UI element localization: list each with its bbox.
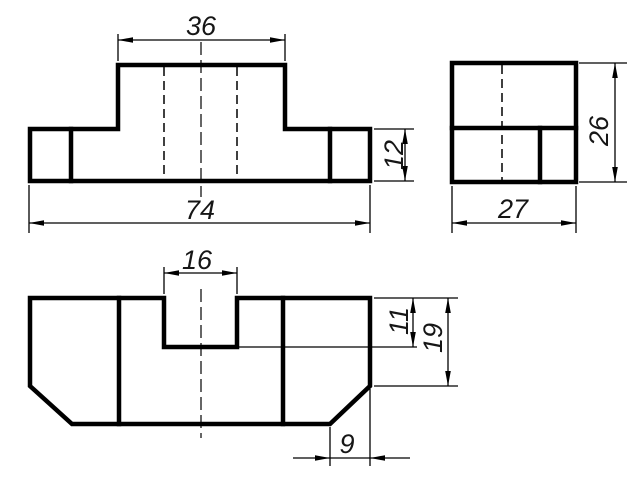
dimension-slot-width: 16 [164,245,237,294]
arrowhead-left [164,270,179,276]
dim-label-depth-to-chamfer: 19 [418,323,448,353]
arrowhead-left [118,37,133,43]
arrowhead-down [445,371,451,386]
arrowhead-left [452,220,467,226]
orthographic-drawing: 36 74 12 [0,0,640,480]
arrowhead-right [355,220,370,226]
dim-label-depth: 27 [497,194,529,224]
front-view-outline [30,65,370,181]
arrowhead-right [222,270,237,276]
arrowhead-left [29,220,44,226]
dim-label-total-width: 74 [185,195,215,225]
arrowhead-up [445,298,451,313]
top-view-outline [30,298,370,424]
drawing-canvas: 36 74 12 [0,0,640,480]
dimension-total-width: 74 [29,185,370,233]
dimension-slot-depth: 11 [384,298,416,347]
dimension-depth: 27 [452,186,576,233]
arrowhead-right [270,37,285,43]
dim-label-chamfer-width: 9 [339,429,354,459]
arrowhead-right [561,220,576,226]
front-view: 36 74 12 [29,11,414,233]
dimension-base-height: 12 [374,129,414,181]
arrowhead-down [612,167,618,182]
dim-label-total-height: 26 [584,115,614,147]
arrowhead-up [612,63,618,78]
dimension-total-height: 26 [579,63,627,182]
arrowhead-inward-left [370,455,385,461]
arrowhead-inward-right [315,455,330,461]
dimension-depth-to-chamfer: 19 [418,298,451,386]
side-view: 26 27 [452,63,627,233]
dim-label-base-height: 12 [379,140,409,170]
side-view-outline [452,63,576,182]
top-view: 16 11 19 9 [30,245,458,466]
dim-label-slot-depth: 11 [384,307,414,335]
dim-label-slot-width: 16 [182,245,213,275]
dim-label-boss-width: 36 [186,11,217,41]
